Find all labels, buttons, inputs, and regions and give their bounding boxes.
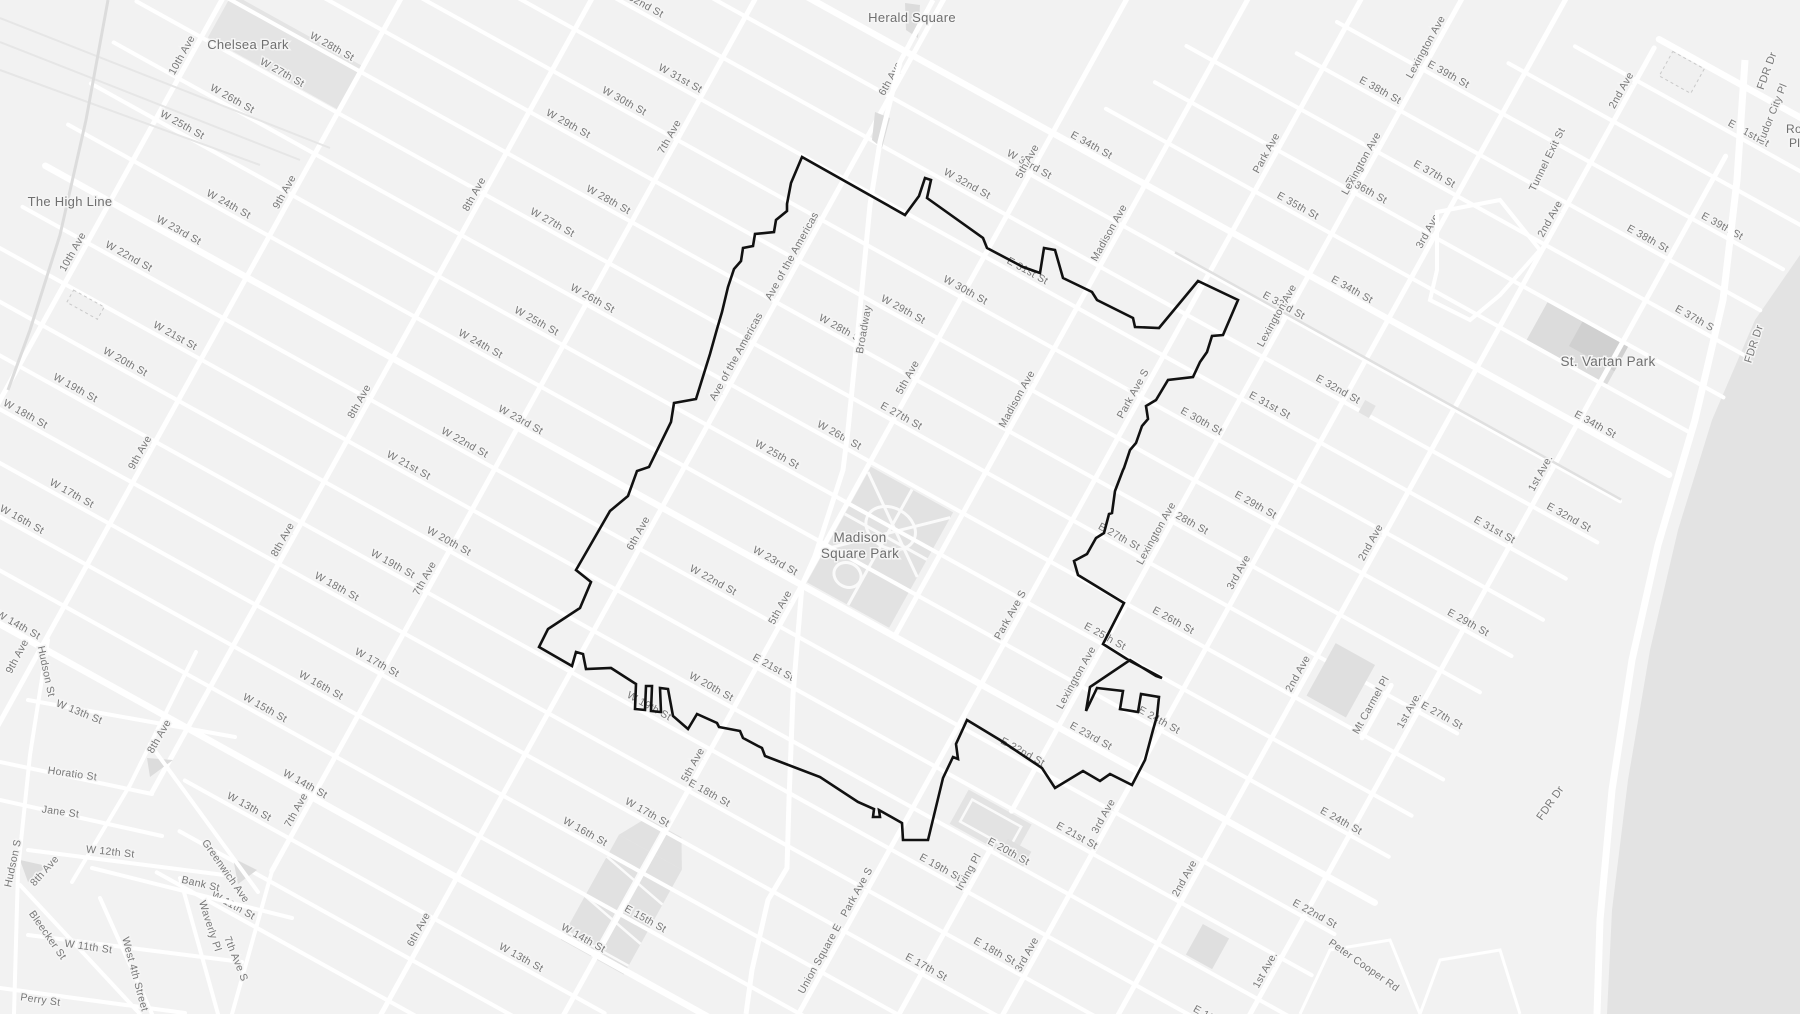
park-label: Play — [1789, 136, 1800, 150]
park-label: Madison — [833, 530, 886, 545]
park-label: Chelsea Park — [207, 37, 289, 52]
park-label: Square Park — [821, 546, 899, 561]
map-viewport[interactable]: W 11th StW 13th StW 13th StW 14th StW 14… — [0, 0, 1800, 1014]
park-label: St. Vartan Park — [1560, 354, 1655, 369]
park-label: Herald Square — [868, 10, 956, 25]
map-canvas[interactable]: W 11th StW 13th StW 13th StW 14th StW 14… — [0, 0, 1800, 1014]
park-label: Rober — [1786, 122, 1800, 136]
park-label: The High Line — [28, 194, 113, 209]
